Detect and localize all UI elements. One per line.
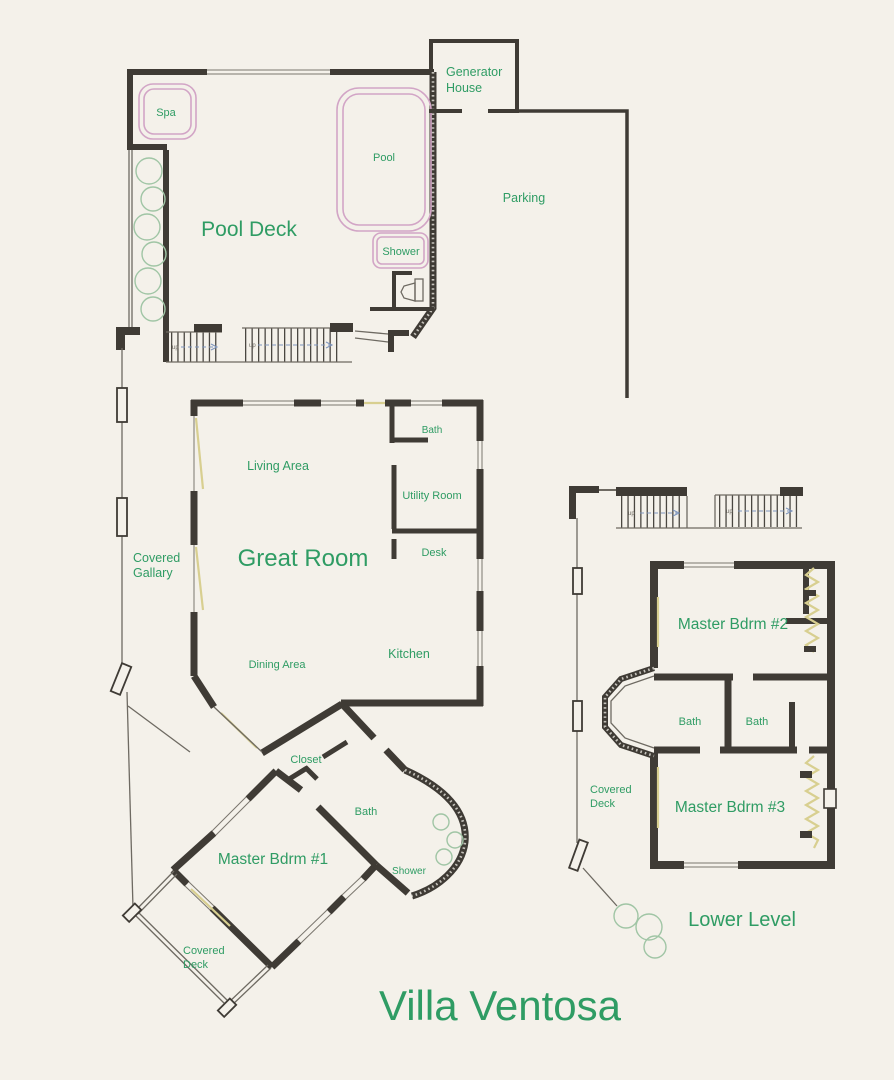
- lower-level-stairs: up up: [569, 486, 803, 528]
- stairs-up-label: up: [628, 511, 635, 517]
- utility-room-label: Utility Room: [402, 490, 461, 502]
- great-room-block: Living Area Bath Utility Room Great Room…: [191, 400, 483, 707]
- living-area-label: Living Area: [247, 459, 309, 473]
- lower-deck-line: [569, 518, 617, 906]
- floorplan-drawing: up up Spa Pool Pool Deck Shower Generato…: [0, 0, 894, 1080]
- kitchen-label: Kitchen: [388, 647, 430, 661]
- toilet-icon: [401, 279, 423, 301]
- pool-label: Pool: [373, 152, 395, 164]
- parking-area: Parking: [503, 111, 627, 398]
- closet-label: Closet: [290, 754, 321, 766]
- generator-house-label: Generator: [446, 65, 502, 79]
- shower-top-label: Shower: [382, 246, 420, 258]
- bath-suite-label: Bath: [355, 806, 378, 818]
- stairs-up-label: up: [172, 345, 179, 351]
- lower-level-unit: up up: [569, 486, 836, 958]
- master-bdrm2-label: Master Bdrm #2: [678, 616, 788, 633]
- dining-area-label: Dining Area: [249, 659, 307, 671]
- gallery-post: [117, 498, 127, 536]
- bath-lower1-label: Bath: [679, 716, 702, 728]
- gallery-post: [111, 663, 132, 695]
- pool-deck-stairs: up up: [166, 323, 353, 362]
- covered-deck2-label: Deck: [590, 798, 616, 810]
- bdrm3-door: [824, 789, 836, 808]
- master-bdrm3-label: Master Bdrm #3: [675, 799, 785, 816]
- bath-main-label: Bath: [422, 425, 443, 436]
- covered-gallary-label: Gallary: [133, 566, 173, 580]
- great-room-label: Great Room: [238, 545, 369, 572]
- parking-label: Parking: [503, 191, 545, 205]
- lower-level-label: Lower Level: [688, 909, 796, 931]
- shower-suite-label: Shower: [392, 866, 427, 877]
- bay-window: [605, 668, 654, 756]
- spa-label: Spa: [156, 107, 176, 119]
- stairs-up-label: up: [249, 343, 256, 349]
- desk-label: Desk: [421, 547, 447, 559]
- gallery-post: [117, 388, 127, 422]
- covered-gallary-label: Covered: [133, 551, 180, 565]
- generator-house: Generator House: [429, 39, 519, 113]
- corner-bracket: [388, 330, 409, 352]
- covered-deck2-label: Covered: [590, 784, 632, 796]
- planter-trees: [134, 158, 166, 321]
- master-bdrm1-label: Master Bdrm #1: [218, 851, 328, 868]
- bath-lower2-label: Bath: [746, 716, 769, 728]
- lower-bushes: [614, 904, 666, 958]
- pool-deck-label: Pool Deck: [201, 218, 297, 241]
- stairs-up-label: up: [726, 509, 733, 515]
- master-suite: Closet Bath Master Bdrm #1 Shower Covere…: [123, 704, 465, 1017]
- plan-title: Villa Ventosa: [379, 982, 622, 1029]
- floorplan-page: up up Spa Pool Pool Deck Shower Generato…: [0, 0, 894, 1080]
- covered-deck1-label: Deck: [183, 959, 209, 971]
- covered-deck1-label: Covered: [183, 945, 225, 957]
- covered-gallery: Covered Gallary: [111, 348, 190, 908]
- pool-deck-area: up up Spa Pool Pool Deck Shower: [116, 69, 434, 362]
- generator-house-label: House: [446, 81, 482, 95]
- corner-bracket: [116, 327, 140, 350]
